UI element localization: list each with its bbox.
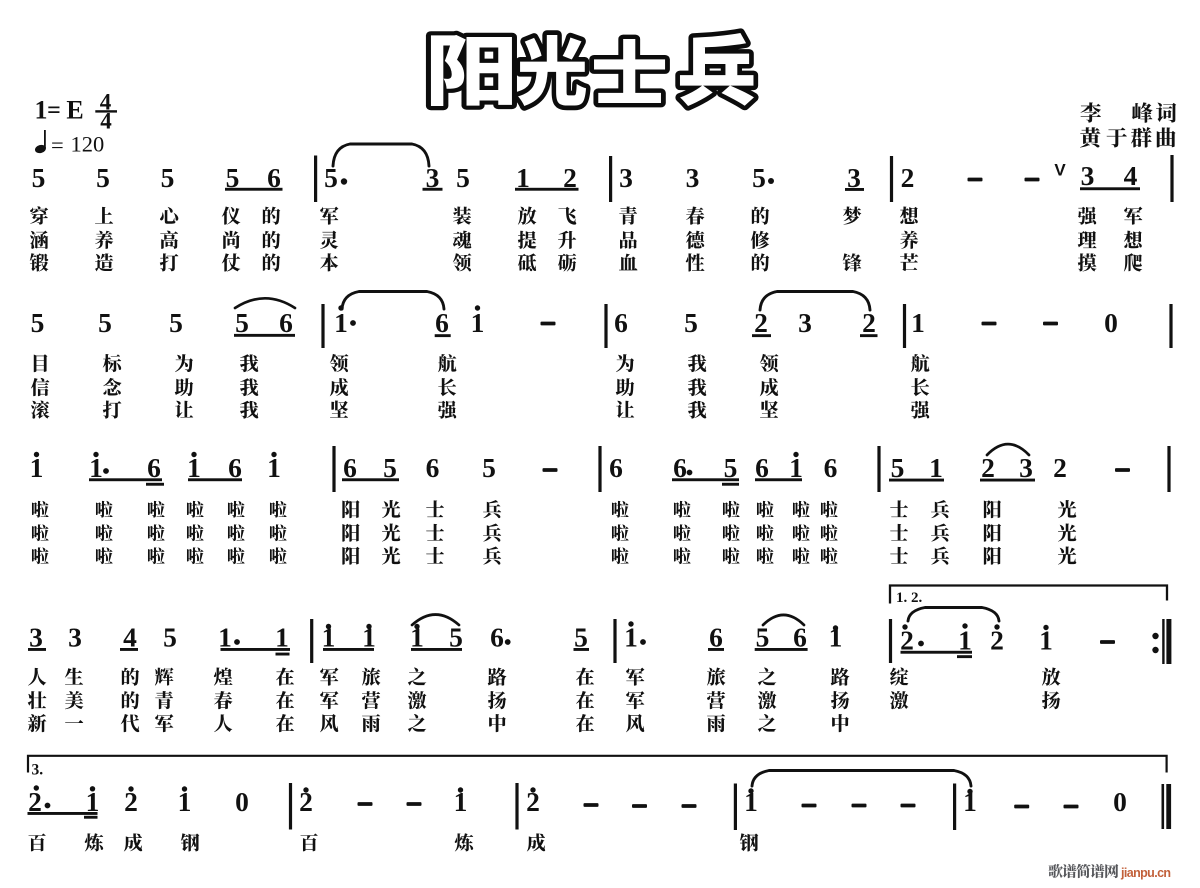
svg-text:3.: 3.: [32, 762, 44, 779]
svg-text:5: 5: [482, 452, 496, 483]
svg-text:=: =: [51, 132, 64, 157]
svg-text:5: 5: [456, 162, 470, 193]
svg-text:1: 1: [35, 95, 48, 124]
svg-text:4: 4: [1124, 160, 1138, 191]
svg-text:5: 5: [449, 622, 463, 653]
svg-text:2: 2: [862, 307, 876, 338]
svg-text:6: 6: [614, 307, 628, 338]
svg-text:6: 6: [709, 622, 723, 653]
svg-text:0: 0: [235, 786, 249, 817]
svg-text:4: 4: [123, 622, 137, 653]
svg-text:6: 6: [426, 452, 440, 483]
svg-text:3: 3: [29, 622, 43, 653]
svg-text:4: 4: [100, 108, 112, 133]
svg-text:1: 1: [218, 622, 232, 653]
svg-text:=: =: [47, 98, 61, 124]
svg-text:V: V: [1054, 161, 1066, 180]
svg-text:5: 5: [98, 307, 112, 338]
svg-text:5: 5: [574, 622, 588, 653]
svg-text:5: 5: [324, 162, 338, 193]
svg-text:3: 3: [68, 622, 82, 653]
svg-text:5: 5: [169, 307, 183, 338]
svg-text:2: 2: [901, 162, 915, 193]
svg-text:1. 2.: 1. 2.: [896, 590, 923, 606]
svg-text:5: 5: [891, 452, 905, 483]
svg-text:6: 6: [609, 452, 623, 483]
svg-text:5: 5: [161, 162, 175, 193]
svg-text:1: 1: [334, 307, 348, 338]
svg-text:1: 1: [929, 452, 943, 483]
svg-text:6: 6: [793, 622, 807, 653]
svg-text:3: 3: [1019, 452, 1033, 483]
svg-text:5: 5: [235, 307, 249, 338]
svg-text:2: 2: [1053, 452, 1067, 483]
svg-text:5: 5: [684, 307, 698, 338]
svg-text:5: 5: [752, 162, 766, 193]
svg-text:6: 6: [490, 622, 504, 653]
svg-text:0: 0: [1104, 307, 1118, 338]
svg-text:E: E: [66, 95, 83, 124]
svg-text:5: 5: [31, 307, 45, 338]
svg-text:6: 6: [279, 307, 293, 338]
svg-text:1: 1: [275, 622, 289, 653]
svg-text:120: 120: [71, 131, 105, 156]
svg-text:5: 5: [32, 162, 46, 193]
svg-text:5: 5: [163, 622, 177, 653]
svg-text:3: 3: [798, 307, 812, 338]
svg-text:3: 3: [686, 162, 700, 193]
svg-text:6: 6: [824, 452, 838, 483]
svg-text:1: 1: [471, 307, 485, 338]
svg-text:2: 2: [754, 307, 768, 338]
svg-text:5: 5: [96, 162, 110, 193]
svg-text:jianpu.cn: jianpu.cn: [1120, 866, 1170, 880]
svg-text:2: 2: [981, 452, 995, 483]
svg-text:3: 3: [1081, 160, 1095, 191]
svg-text:3: 3: [619, 162, 633, 193]
svg-text:1: 1: [911, 307, 925, 338]
svg-text:0: 0: [1113, 786, 1127, 817]
svg-text:6: 6: [435, 307, 449, 338]
